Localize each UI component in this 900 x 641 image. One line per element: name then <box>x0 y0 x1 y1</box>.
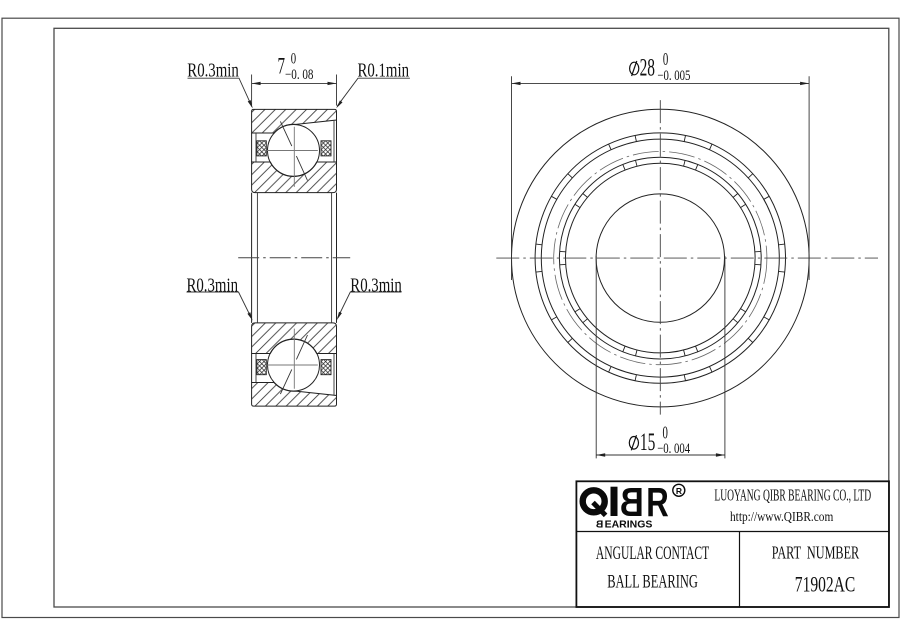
svg-text:R0.3min: R0.3min <box>187 60 239 82</box>
svg-text:PART NUMBER: PART NUMBER <box>772 543 860 563</box>
svg-text:BALL BEARING: BALL BEARING <box>607 573 698 593</box>
svg-text:7: 7 <box>278 54 286 79</box>
svg-text:R0.3min: R0.3min <box>350 274 402 296</box>
svg-text:15: 15 <box>640 429 655 456</box>
svg-text:EARINGS: EARINGS <box>605 519 653 531</box>
svg-text:0: 0 <box>663 49 669 69</box>
svg-text:B: B <box>595 519 603 531</box>
svg-text:R0.1min: R0.1min <box>358 60 410 82</box>
svg-text:−0. 08: −0. 08 <box>285 67 314 83</box>
svg-text:0: 0 <box>291 50 297 67</box>
svg-text:R: R <box>676 486 682 496</box>
svg-text:ANGULAR CONTACT: ANGULAR CONTACT <box>596 544 709 564</box>
svg-text:LUOYANG QIBR BEARING CO., LTD: LUOYANG QIBR BEARING CO., LTD <box>714 486 871 505</box>
svg-text:71902AC: 71902AC <box>795 571 856 596</box>
svg-text:−0. 005: −0. 005 <box>657 68 690 84</box>
svg-text:0: 0 <box>663 423 669 443</box>
svg-text:28: 28 <box>640 55 655 82</box>
svg-text:−0. 004: −0. 004 <box>657 441 691 457</box>
svg-text:R0.3min: R0.3min <box>187 274 239 296</box>
svg-text:http://www.QIBR.com: http://www.QIBR.com <box>730 509 834 524</box>
